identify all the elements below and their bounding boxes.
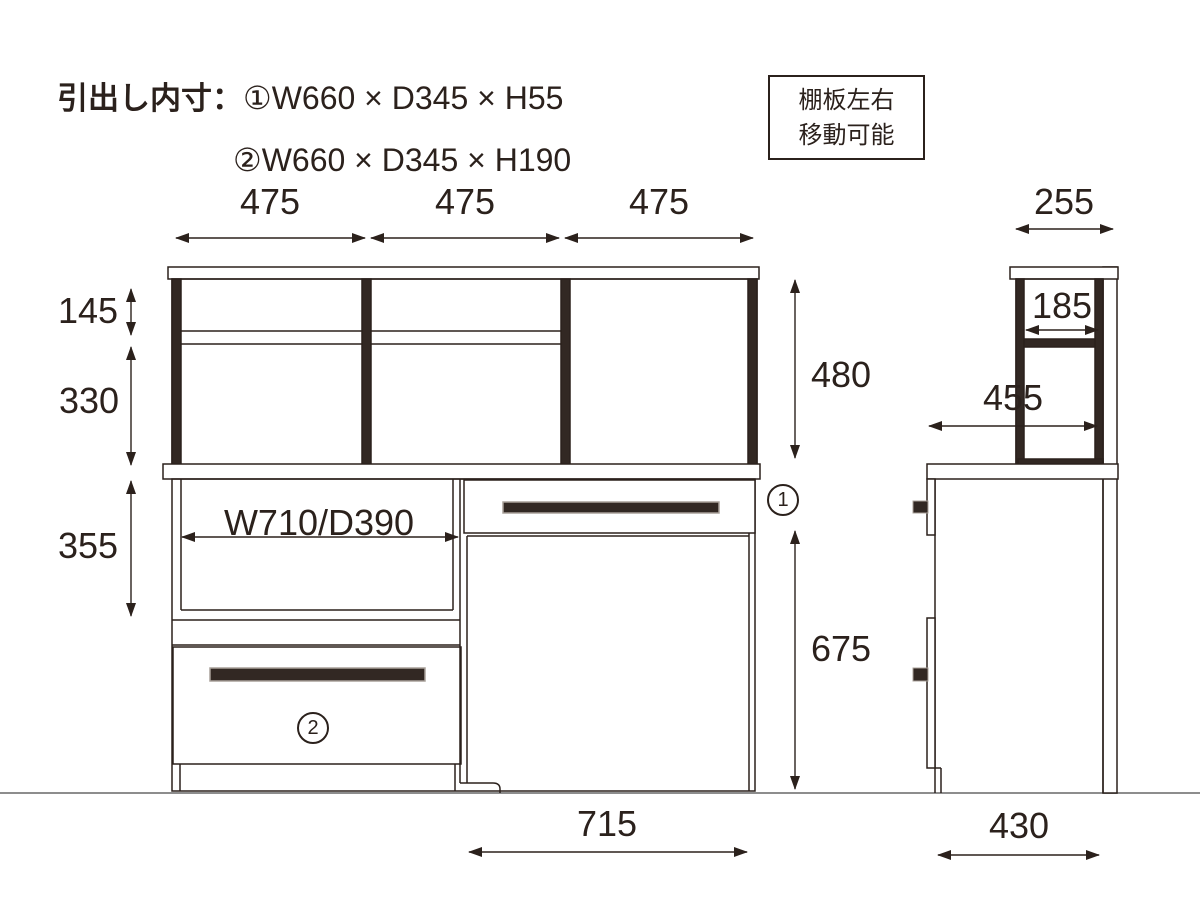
drawer-2-circle-mark: 2: [297, 712, 329, 744]
hutch-divider-1: [362, 279, 371, 465]
shelf-note-line1: 棚板左右: [799, 83, 895, 118]
dim-355: 355: [58, 528, 118, 564]
dim-675: 675: [811, 631, 871, 667]
dim-475-left: 475: [240, 184, 300, 220]
hutch-shelf-left: [181, 331, 362, 344]
hutch-right-frame: [748, 279, 757, 465]
drawer-1-handle: [503, 502, 719, 513]
drawer-inner-size-title: 引出し内寸：①W660 × D345 × H55: [57, 80, 563, 117]
side-back-panel: [1103, 267, 1117, 793]
drawer-2-handle: [210, 668, 425, 681]
hutch-top-board: [168, 267, 759, 279]
dim-open-space-label: W710/D390: [224, 505, 414, 541]
dim-475-right: 475: [629, 184, 689, 220]
hutch-divider-2: [561, 279, 570, 465]
dim-145: 145: [58, 293, 118, 329]
technical-drawing-canvas: [0, 0, 1200, 900]
dim-455: 455: [983, 380, 1043, 416]
drawer-inner-size-label: 引出し内寸：: [57, 81, 243, 116]
side-hutch-shelf: [1024, 339, 1095, 347]
side-drawer-1-handle: [913, 501, 928, 513]
drawer-2-front: [173, 647, 461, 764]
side-hutch-back-frame: [1095, 279, 1103, 465]
drawer-1-circle-number: 1: [777, 490, 788, 510]
hutch-shelf-center: [371, 331, 561, 344]
dim-480: 480: [811, 357, 871, 393]
side-drawer-2-front: [927, 618, 935, 768]
drawer-1-size: ①W660 × D345 × H55: [243, 80, 563, 116]
dim-255: 255: [1034, 184, 1094, 220]
dim-430: 430: [989, 808, 1049, 844]
side-view: [913, 267, 1118, 793]
hutch-left-frame: [172, 279, 181, 465]
drawer-1-circle-mark: 1: [767, 484, 799, 516]
drawer-2-size-line: ②W660 × D345 × H190: [233, 142, 571, 178]
side-hutch-top-board: [1010, 267, 1118, 279]
dim-715: 715: [577, 806, 637, 842]
drawer-2-size: ②W660 × D345 × H190: [233, 142, 571, 178]
dim-185: 185: [1032, 288, 1092, 324]
counter-board: [163, 464, 760, 479]
furniture-dimension-diagram: 引出し内寸：①W660 × D345 × H55 ②W660 × D345 × …: [0, 0, 1200, 900]
shelf-note-box: 棚板左右 移動可能: [768, 75, 925, 160]
side-drawer-2-handle: [913, 668, 928, 681]
hutch-outline: [172, 279, 757, 465]
side-hutch-front-frame: [1016, 279, 1024, 465]
side-counter-board: [927, 464, 1118, 479]
shelf-note-line2: 移動可能: [799, 118, 895, 153]
dim-475-center: 475: [435, 184, 495, 220]
drawer-2-circle-number: 2: [307, 718, 318, 738]
dim-330: 330: [59, 383, 119, 419]
